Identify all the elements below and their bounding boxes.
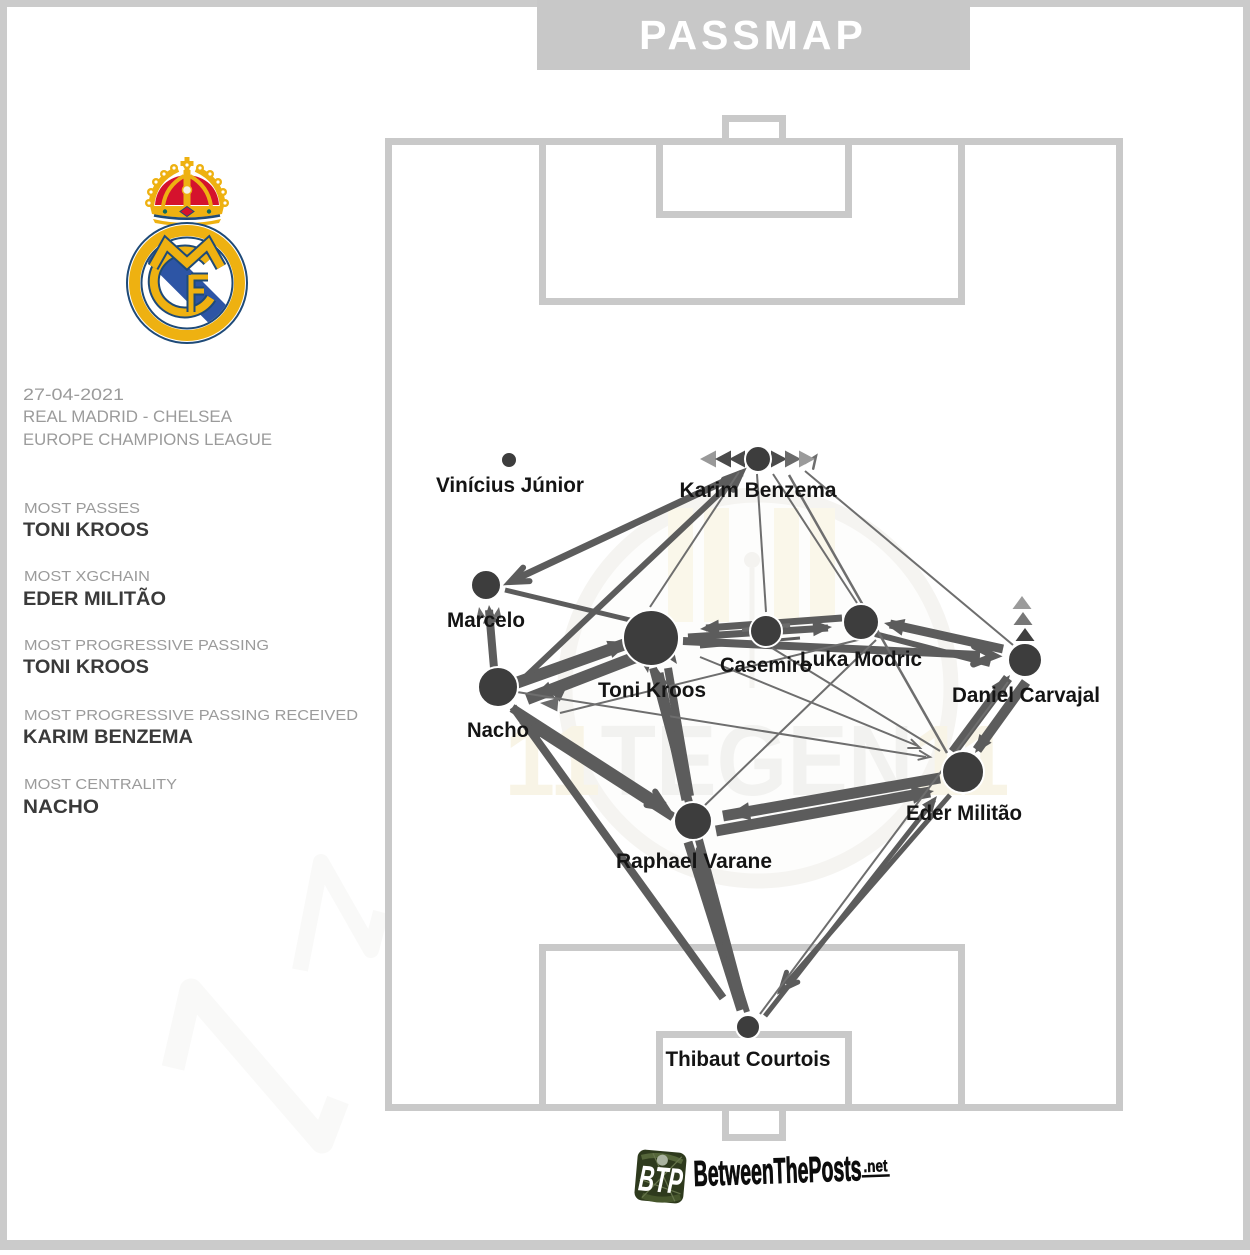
svg-text:EUROPE CHAMPIONS LEAGUE: EUROPE CHAMPIONS LEAGUE [23,430,272,449]
svg-text:REAL MADRID - CHELSEA: REAL MADRID - CHELSEA [23,407,233,426]
svg-text:Thibaut Courtois: Thibaut Courtois [666,1048,831,1071]
svg-text:Nacho: Nacho [467,719,529,742]
svg-text:MOST PASSES: MOST PASSES [24,500,140,517]
svg-text:MOST CENTRALITY: MOST CENTRALITY [24,776,177,793]
svg-text:PASSMAP: PASSMAP [639,12,867,58]
svg-text:Marcelo: Marcelo [447,609,525,632]
svg-text:EDER MILITÃO: EDER MILITÃO [23,588,166,610]
svg-text:MOST PROGRESSIVE PASSING RECEI: MOST PROGRESSIVE PASSING RECEIVED [24,707,358,724]
svg-text:MOST XGCHAIN: MOST XGCHAIN [24,568,150,585]
svg-text:KARIM BENZEMA: KARIM BENZEMA [23,727,193,748]
svg-text:Toni Kroos: Toni Kroos [598,679,706,702]
svg-text:Casemiro: Casemiro [720,654,812,677]
svg-text:TONI KROOS: TONI KROOS [23,520,149,541]
svg-text:Eder Militão: Eder Militão [906,802,1022,825]
svg-text:MOST PROGRESSIVE PASSING: MOST PROGRESSIVE PASSING [24,637,269,654]
svg-text:.net: .net [863,1156,888,1176]
svg-text:BetweenThePosts: BetweenThePosts [693,1147,862,1194]
svg-text:Raphael Varane: Raphael Varane [616,850,772,873]
svg-text:Daniel Carvajal: Daniel Carvajal [952,684,1100,707]
svg-text:27-04-2021: 27-04-2021 [23,385,124,404]
svg-text:Vinícius Júnior: Vinícius Júnior [436,474,584,497]
svg-text:Karim Benzema: Karim Benzema [680,479,837,502]
svg-text:TONI KROOS: TONI KROOS [23,657,149,678]
svg-text:NACHO: NACHO [23,797,99,818]
svg-text:BTP: BTP [637,1157,685,1202]
svg-text:Luka Modric: Luka Modric [800,648,922,671]
